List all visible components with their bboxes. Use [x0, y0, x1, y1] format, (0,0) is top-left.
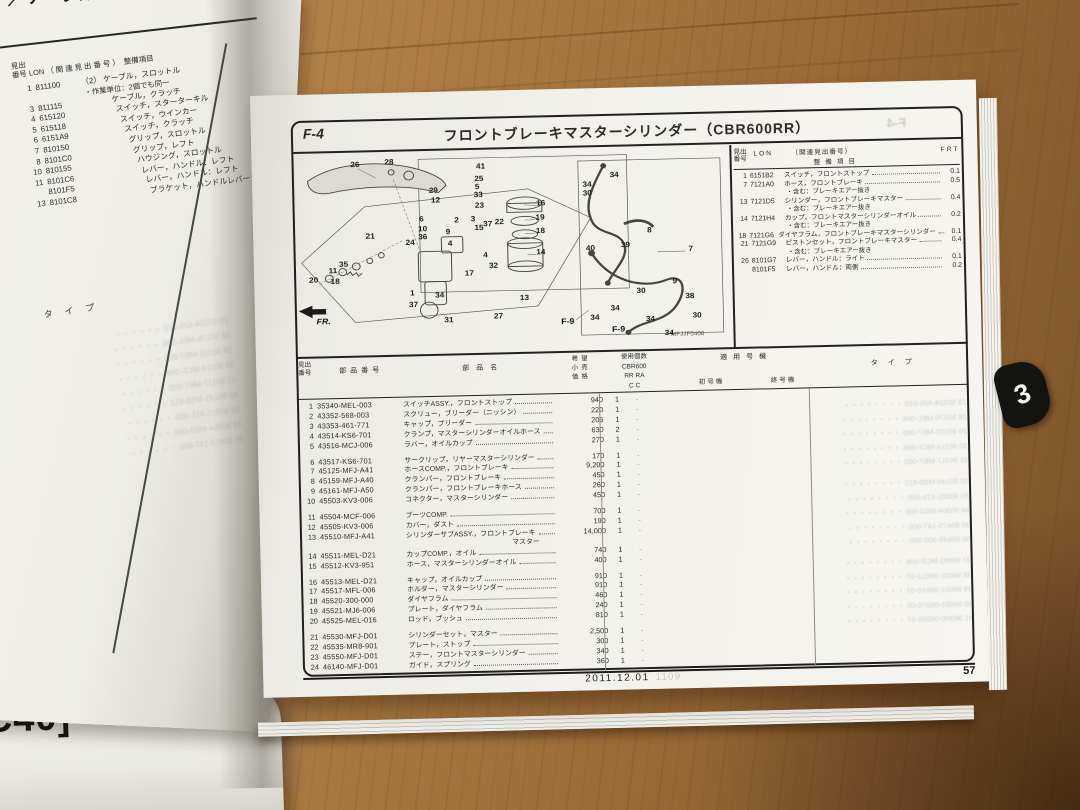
service-table: 見出 番号 LON （関連見出番号） 整備項目 FRT 16151B2スイッチ，…: [733, 142, 962, 275]
service-row-no: 7: [734, 181, 747, 190]
parts-row-qty-ra: -: [627, 405, 647, 414]
parts-row-qty: 1: [608, 451, 628, 460]
service-row-lon: 7121D5: [750, 197, 784, 206]
dot-leader: [867, 258, 942, 261]
parts-row-qty: 2: [608, 425, 628, 434]
parts-row-qty: 1: [611, 591, 631, 600]
parts-row-no: 10: [299, 498, 315, 507]
diagram-callout: 20: [309, 276, 319, 285]
diagram-callout: 9: [446, 227, 451, 236]
service-row-name: レバー，ハンドル：両側: [786, 264, 859, 274]
diagram-callout: 34: [646, 314, 656, 323]
parts-row-qty-ra: -: [630, 545, 650, 554]
diagram-callout: 11: [329, 266, 339, 275]
diagram-callout: 41: [476, 162, 486, 171]
parts-row-qty-ra: -: [630, 516, 650, 525]
parts-row-qty-ra: -: [633, 656, 653, 665]
diagram-callout: 29: [429, 186, 439, 195]
parts-row-no: 8: [299, 478, 315, 487]
fr-label: FR.: [316, 316, 330, 326]
diagram-callout: 18: [330, 277, 340, 286]
service-row-lon: 7121G9: [751, 240, 785, 249]
dot-leader: [543, 432, 552, 433]
diagram-callout: 37: [483, 219, 493, 228]
diagram-callout: 3: [471, 214, 476, 223]
parts-row-qty-ra: -: [629, 506, 649, 515]
diagram-callout: 13: [520, 293, 530, 302]
parts-row-name: ロッド，プッシュ: [408, 615, 463, 625]
parts-row-no: 6: [298, 458, 314, 467]
parts-row-qty-ra: -: [628, 460, 648, 469]
wood-grain-line: [301, 3, 1019, 55]
left-row-no: 1: [13, 84, 32, 97]
footer-date: 2011.12.01: [585, 672, 650, 684]
service-row-no: 18: [735, 232, 746, 241]
diagram-callout: 34: [590, 313, 600, 322]
diagram-callout: 38: [685, 291, 695, 300]
diagram-callout: 35: [339, 260, 349, 269]
service-row-frt: 0.4: [943, 236, 961, 245]
dot-leader: [457, 523, 555, 526]
diagram-callout: 6: [419, 215, 424, 224]
parts-row-no: 15: [301, 562, 317, 571]
dot-leader: [486, 607, 557, 610]
ghost-line: 33 90301-415-000 ・・・・・・: [0, 402, 241, 456]
parts-row-qty-ra: -: [631, 590, 651, 599]
parts-row-qty: 1: [612, 636, 632, 645]
left-page-table: 見出 番号 LON （関連見出番号） 整備項目 1811100（2）ケーブル，ス…: [10, 32, 276, 212]
parts-row-no: 5: [298, 442, 314, 451]
dot-leader: [466, 617, 557, 620]
parts-row-name-cell: コネクター，マスターシリンダー: [405, 493, 557, 505]
parts-row-no: 16: [301, 578, 317, 587]
parts-row-no: 3: [297, 422, 313, 431]
diagram-callout: 32: [489, 261, 499, 270]
parts-row-no: 13: [300, 533, 316, 542]
diagram-callout: 4: [448, 239, 453, 248]
parts-row-qty: 1: [607, 396, 627, 405]
showthrough-text-left: 25 50324-425-010 ・・・・・・28 50170-MEL-006 …: [0, 313, 245, 486]
left-row-no: 13: [27, 199, 46, 212]
diagram-callout: 23: [475, 201, 485, 210]
dot-leader: [451, 513, 555, 516]
service-row-no: 26: [736, 258, 749, 267]
ghost-line: 32 90145-MS9-612 ・・・・・・: [0, 387, 239, 441]
dot-leader: [519, 562, 555, 564]
diagram-callout: 21: [365, 232, 375, 241]
diagram-callout: 34: [582, 180, 592, 189]
parts-row-name: プレート，ダイヤフラム: [408, 605, 483, 616]
dot-leader: [511, 497, 554, 499]
photo-scene: C40] ッチ／ケーブル 見出 番号 LON （関連見出番号） 整備項目 181…: [0, 0, 1080, 810]
service-row-frt: 0.2: [943, 210, 961, 219]
parts-row-qty: 1: [608, 461, 628, 470]
parts-row-name: コネクター，マスターシリンダー: [405, 494, 508, 505]
parts-row-qty: 1: [611, 571, 631, 580]
service-row-no: 21: [735, 241, 748, 250]
parts-row-qty-ra: -: [629, 470, 649, 479]
dot-leader: [473, 643, 557, 646]
dot-leader: [538, 458, 554, 459]
parts-row-part-number: 43516-MCJ-006: [318, 440, 404, 451]
parts-row-qty: 1: [608, 435, 628, 444]
parts-row-qty: 1: [609, 507, 629, 516]
diagram-callout: 1: [410, 289, 415, 298]
parts-row-no: 22: [302, 644, 318, 653]
diagram-callout: 36: [418, 232, 428, 241]
parts-row-no: 18: [301, 598, 317, 607]
parts-row-name-cell: ロッド，プッシュ: [408, 613, 560, 625]
parts-row-qty: 1: [609, 471, 629, 480]
service-row-no: 14: [735, 215, 748, 224]
parts-row-no: 11: [299, 514, 315, 523]
dot-leader: [507, 588, 557, 590]
diagram-callout: 30: [636, 286, 646, 295]
dot-leader: [515, 402, 552, 404]
parts-row-qty-ra: -: [628, 451, 648, 460]
parts-row-name: ダイヤフラム: [407, 596, 448, 606]
parts-table-rows: 25 50324-425-010 ・・・・・・・・28 50170-MEL-00…: [297, 385, 975, 680]
diagram-callout: 31: [444, 315, 454, 324]
parts-row-qty-ra: -: [631, 571, 651, 580]
service-row-frt: 0.1: [946, 227, 961, 236]
service-table-rows: 16151B2スイッチ，フロントストップ0.177121A0ホース，フロントブレ…: [734, 165, 962, 275]
parts-row-qty: 1: [612, 611, 632, 620]
page-footer: 2011.12.011109: [585, 671, 681, 684]
parts-row-qty: 1: [612, 626, 632, 635]
dot-leader: [918, 215, 941, 217]
parts-row-no: 21: [302, 634, 318, 643]
diagram-callout: 27: [494, 312, 504, 321]
footer-ghost: 1109: [655, 671, 681, 683]
exploded-parts-diagram: FR. MFJJF0400 26284125533232912623103691…: [293, 145, 735, 355]
parts-row-no: 9: [299, 488, 315, 497]
diagram-callout: 26: [350, 160, 360, 169]
ghost-line: 31 90117-MB7-000 ・・・・・・: [0, 372, 237, 426]
ghost-line: 30 90114-MCF-006 ・・・・・・: [0, 357, 235, 411]
parts-row-no: 19: [302, 608, 318, 617]
service-row-frt: 0.2: [944, 262, 962, 271]
dot-leader: [539, 533, 555, 534]
parts-row-qty: 1: [611, 555, 631, 564]
diagram-callout: 28: [384, 158, 394, 167]
service-row-frt: 0.5: [942, 177, 960, 186]
diagram-callout: 39: [621, 240, 631, 249]
dot-leader: [504, 478, 554, 480]
dot-leader: [529, 653, 558, 655]
dot-leader: [485, 578, 556, 581]
left-row-rel: [95, 190, 118, 203]
dot-leader: [525, 487, 554, 489]
parts-row-qty-ra: -: [631, 580, 651, 589]
service-row-lon: 7121H4: [751, 214, 785, 223]
diagram-callout: 18: [536, 226, 546, 235]
dot-leader: [479, 552, 555, 555]
diagram-callout: 30: [583, 189, 593, 198]
service-row-frt: 0.4: [942, 194, 960, 203]
parts-row-no: 23: [303, 653, 319, 662]
diagram-callout: 7: [688, 244, 693, 253]
parts-row-name: カップCOMP.，オイル: [406, 550, 476, 560]
parts-row-part-number: 45503-KV3-006: [319, 496, 405, 507]
parts-row-qty-ra: -: [628, 425, 648, 434]
service-row-no: 13: [734, 198, 747, 207]
parts-table: 見出 番号 部品番号 部品名 希望 小売 価格 使用個数 CBR600 RR R…: [296, 342, 975, 680]
ghost-line: 28 50170-MEL-006 ・・・・・・: [0, 328, 231, 382]
parts-row-qty: 1: [607, 415, 627, 424]
parts-row-part-number: 45525-MEL-016: [322, 616, 408, 627]
parts-row-no: 7: [298, 468, 314, 477]
parts-row-qty: 1: [611, 581, 631, 590]
diagram-callout: 4: [483, 251, 488, 260]
parts-row-no: 4: [298, 432, 314, 441]
diagram-callout: 9: [673, 277, 678, 286]
dot-leader: [512, 468, 554, 470]
dot-leader: [501, 633, 558, 635]
left-page-rows: 1811100（2）ケーブル，スロットル・作業単位：2個でも同一3811115ケ…: [13, 55, 277, 211]
parts-row-qty: 1: [613, 646, 633, 655]
diagram-callout: 8: [647, 226, 652, 235]
parts-row-qty: 1: [610, 545, 630, 554]
parts-row-name: ラバー，オイルカップ: [404, 440, 473, 450]
left-page-type-header: タイプ: [43, 298, 107, 320]
diagram-callout: 34: [665, 328, 675, 337]
parts-row-no: 20: [302, 618, 318, 627]
parts-row-qty-ra: -: [629, 480, 649, 489]
service-row-lon: 7121A0: [750, 180, 784, 189]
diagram-callout: 24: [406, 238, 416, 247]
parts-row-qty: 1: [610, 526, 630, 535]
page-number: 57: [963, 665, 976, 677]
ghost-line: 34 90304-MS3-000 ・・・・・・: [0, 417, 243, 471]
parts-row-qty-ra: -: [627, 395, 647, 404]
service-row-no: 1: [734, 173, 747, 182]
parts-row-qty: 1: [609, 481, 629, 490]
diagram-callout: 16: [536, 199, 546, 208]
dot-leader: [938, 232, 944, 233]
parts-row-name: ブーツCOMP.: [405, 512, 447, 522]
parts-row-part-number: 45512-KV3-951: [321, 560, 407, 571]
diagram-callout: 14: [536, 248, 546, 257]
dot-leader: [523, 412, 552, 414]
dot-leader: [475, 422, 552, 425]
parts-row-qty: 1: [609, 491, 629, 500]
dot-leader: [871, 172, 939, 175]
parts-row-qty-ra: -: [632, 600, 652, 609]
diagram-callout: 40: [586, 244, 596, 253]
parts-row-qty: 1: [607, 405, 627, 414]
parts-row-name: キャップ，ブリーダー: [403, 420, 472, 430]
diagram-callout: 19: [535, 213, 545, 222]
ghost-line: 25 50324-425-010 ・・・・・・: [0, 313, 230, 367]
diagram-callout: 30: [692, 311, 702, 320]
section-tab-number: 3: [1010, 377, 1036, 411]
diagram-ref-label: F-9: [561, 316, 575, 326]
dot-leader: [865, 181, 940, 184]
parts-row-qty-ra: -: [632, 636, 652, 645]
diagram-callout: 17: [465, 269, 475, 278]
parts-row-qty-ra: -: [631, 555, 651, 564]
dot-leader: [474, 663, 558, 666]
parts-row-name: カバー，ダスト: [406, 521, 454, 531]
diagram-callout: 33: [474, 190, 484, 199]
right-page: F-4 フロントブレーキマスターシリンダー（CBR600RR） F-4: [250, 80, 989, 698]
diagram-callout: 22: [495, 217, 505, 226]
parts-row-name: ホース，マスターシリンダーオイル: [407, 559, 517, 570]
parts-row-no: 14: [300, 552, 316, 561]
parts-row-no: 2: [297, 413, 313, 422]
ghost-line: 29 90101-MB7-000 ・・・・・・: [0, 342, 233, 396]
parts-row-no: 24: [303, 663, 319, 672]
parts-row-name: プレート，ストップ: [408, 641, 470, 651]
parts-row-qty: 1: [610, 516, 630, 525]
diagram-code: MFJJF0400: [671, 331, 705, 337]
parts-row-qty-ra: -: [632, 610, 652, 619]
diagram-callout: 12: [431, 196, 441, 205]
parts-row-qty: 1: [613, 656, 633, 665]
parts-row-qty-ra: -: [632, 626, 652, 635]
parts-row-qty-ra: -: [627, 415, 647, 424]
service-row-lon: 8101F5: [752, 266, 786, 275]
parts-row-qty: 1: [612, 601, 632, 610]
ghost-line: 35 90473-147-000 ・・・・・・: [0, 432, 245, 486]
parts-row-no: 12: [300, 524, 316, 533]
parts-row-qty-ra: -: [628, 435, 648, 444]
dot-leader: [476, 442, 553, 445]
diagram-ref-label: F-9: [612, 324, 626, 334]
diagram-callout: 34: [610, 304, 620, 313]
dot-leader: [919, 241, 941, 243]
left-page-header: ッチ／ケーブル: [0, 0, 97, 12]
showthrough-mark: F-4: [887, 115, 907, 130]
dot-leader: [905, 198, 940, 200]
diagram-callout: 2: [454, 216, 459, 225]
parts-row-part-number: 46140-MFJ-D01: [323, 661, 409, 672]
dot-leader: [451, 597, 556, 600]
parts-row-qty-ra: -: [629, 490, 649, 499]
parts-row-qty-ra: -: [633, 646, 653, 655]
parts-row-name: ガイド，スプリング: [409, 661, 471, 671]
diagram-callout: 34: [435, 291, 445, 300]
parts-row-qty-ra: -: [630, 526, 650, 535]
parts-row-no: 17: [301, 588, 317, 597]
diagram-callout: 37: [409, 300, 419, 309]
parts-row-no: 1: [297, 403, 313, 412]
diagram-callout: 34: [609, 170, 619, 179]
dot-leader: [861, 266, 942, 269]
